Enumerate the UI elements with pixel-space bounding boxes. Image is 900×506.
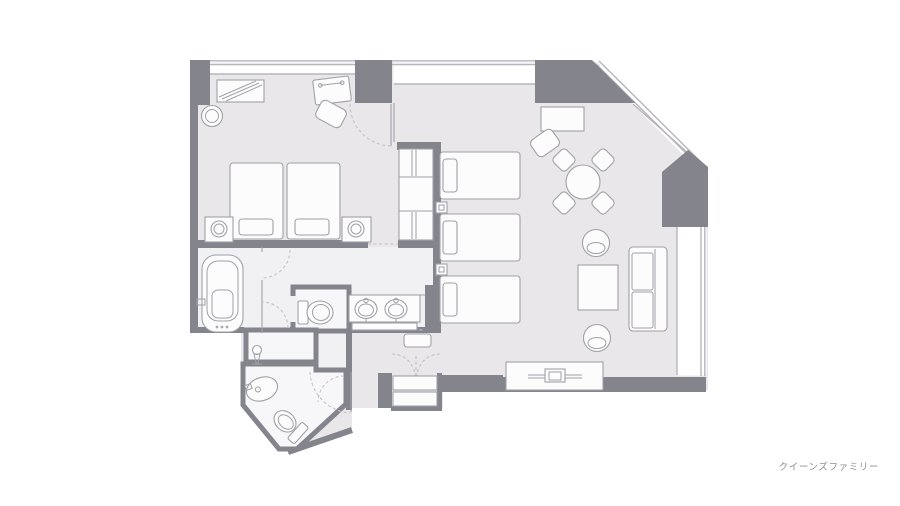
single-bed-1 [440,152,520,199]
wall-bottom-a [441,375,503,392]
nightstand-right [342,217,371,242]
desk-left [313,76,352,105]
reading-light-2 [436,264,447,275]
twin-bed-2 [287,163,340,239]
wall-closet-nook-bottom [391,406,442,411]
single-bed-3 [440,276,520,323]
stool [202,106,223,127]
desk-right [541,107,584,131]
plan-caption: クイーンズファミリー [779,461,879,473]
floor-plan-canvas: クイーンズファミリー [0,0,900,506]
coffee-table [578,265,618,310]
double-washbasin [349,295,420,330]
armchair-1 [583,230,610,257]
floor-plan: クイーンズファミリー [0,0,900,506]
bench [404,334,431,347]
reading-light-1 [436,202,447,213]
single-bed-2 [440,214,520,261]
bathtub [197,255,243,332]
armchair-2 [584,325,611,352]
wardrobe-closet [399,149,433,240]
nightstand-left [205,217,233,242]
toilet-1 [298,301,333,324]
column-top-left [190,60,210,105]
wall-vanity-right [425,285,441,333]
twin-bed-1 [230,163,283,239]
column-top-middle [355,60,392,103]
tv-board [506,362,603,390]
luggage-rack [217,80,264,102]
sofa [629,247,667,331]
wall-entry-block [378,373,392,408]
